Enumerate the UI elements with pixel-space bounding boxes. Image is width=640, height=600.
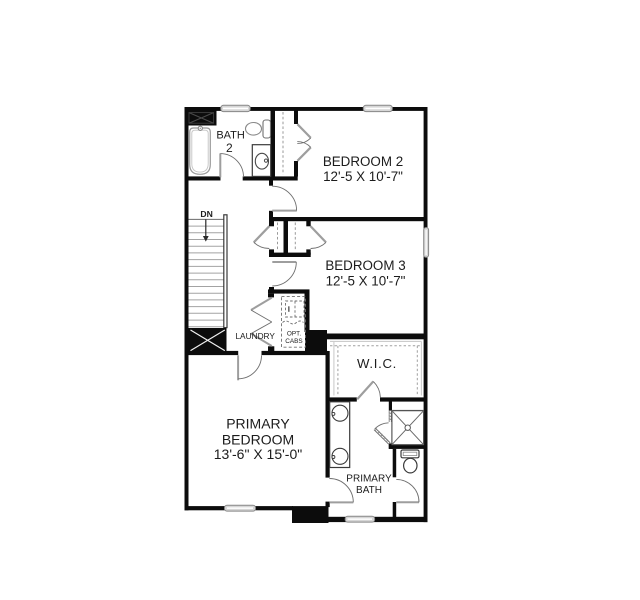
svg-text:BEDROOM 2: BEDROOM 2	[323, 154, 403, 169]
svg-text:BATH: BATH	[356, 485, 382, 496]
svg-text:12'-5 X 10'-7": 12'-5 X 10'-7"	[323, 169, 403, 184]
svg-text:PRIMARY: PRIMARY	[226, 415, 290, 431]
svg-text:PRIMARY: PRIMARY	[346, 474, 392, 485]
svg-text:LAUNDRY: LAUNDRY	[235, 331, 275, 341]
svg-text:CABS: CABS	[285, 338, 302, 345]
svg-text:OPT.: OPT.	[287, 331, 301, 338]
svg-text:W.I.C.: W.I.C.	[357, 356, 397, 371]
svg-text:2: 2	[226, 141, 233, 155]
svg-text:DN: DN	[200, 209, 212, 219]
svg-text:BEDROOM 3: BEDROOM 3	[325, 258, 405, 273]
svg-text:13'-6" X 15'-0": 13'-6" X 15'-0"	[214, 446, 302, 462]
svg-text:12'-5 X 10'-7": 12'-5 X 10'-7"	[326, 273, 406, 288]
svg-text:BATH: BATH	[216, 129, 245, 141]
